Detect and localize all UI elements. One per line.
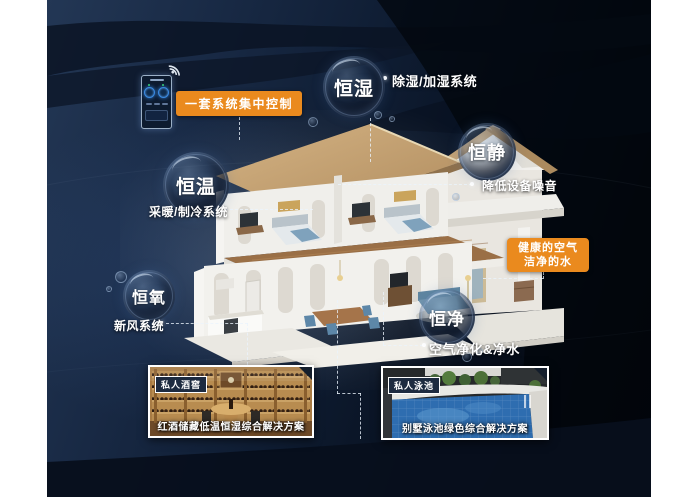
highlight-box: 健康的空气 洁净的水 (507, 238, 589, 272)
bubble-oxygen: 恒氧 (123, 270, 175, 322)
connector-cards-v1 (337, 300, 338, 394)
connector-oxygen (166, 323, 248, 324)
connector-humidity (370, 118, 371, 162)
mini-bubble (308, 117, 318, 127)
card-corner-fold (299, 367, 312, 380)
connector-highlight-h (483, 278, 543, 279)
dial-knob-icon (158, 87, 169, 98)
dial-knob-icon (144, 87, 155, 98)
pool-card-caption: 别墅泳池绿色综合解决方案 (383, 420, 547, 435)
mini-bubble (389, 116, 395, 122)
connector-temperature (225, 209, 313, 210)
control-label: 一套系统集中控制 (176, 91, 302, 116)
connector-clean-up (383, 292, 384, 345)
connector-cards-v2 (360, 393, 361, 439)
bubble-quiet: 恒静 (458, 123, 516, 181)
annotation-oxygen: 新风系统 (114, 317, 164, 334)
phone-dial-knobs (144, 87, 169, 98)
highlight-line2: 洁净的水 (511, 255, 585, 269)
wine-cellar-card: 私人酒窖 红酒储藏低温恒湿综合解决方案 (148, 365, 314, 438)
control-phone-icon (141, 75, 172, 129)
dot-quiet (470, 182, 474, 186)
pool-card-badge: 私人泳池 (388, 377, 440, 394)
bubble-temperature-label: 恒温 (176, 172, 216, 199)
mini-bubble (452, 193, 460, 201)
bubble-quiet-label: 恒静 (468, 139, 506, 165)
bubble-humidity: 恒湿 (323, 56, 385, 118)
annotation-clean: 空气净化&净水 (429, 339, 520, 358)
bubble-oxygen-label: 恒氧 (132, 284, 166, 308)
mini-bubble (374, 111, 382, 119)
bubble-clean: 恒净 (419, 289, 475, 345)
connector-clean (383, 345, 423, 346)
wine-card-caption: 红酒储藏低温恒湿综合解决方案 (150, 418, 312, 433)
mini-bubble (106, 286, 112, 292)
bubble-humidity-label: 恒湿 (334, 74, 374, 101)
annotation-quiet: 降低设备噪音 (482, 177, 557, 194)
mini-bubble (115, 271, 127, 283)
phone-readout-row (146, 103, 168, 105)
card-corner-fold (534, 368, 547, 381)
highlight-line1: 健康的空气 (511, 241, 585, 255)
bubble-clean-label: 恒净 (429, 305, 465, 330)
connector-quiet (338, 184, 472, 185)
infographic-page: 一套系统集中控制 恒湿 恒静 恒温 恒氧 恒净 除湿/加湿系统 降低设备噪音 采… (0, 0, 700, 497)
dot-clean (422, 343, 426, 347)
phone-subpanel (145, 110, 168, 121)
annotation-temperature: 采暖/制冷系统 (149, 203, 228, 220)
wine-card-badge: 私人酒窖 (155, 376, 207, 393)
phone-screen-title-bar (150, 79, 164, 81)
connector-oxygen-down (247, 323, 248, 365)
connector-cards-h (337, 393, 361, 394)
pool-card: 私人泳池 别墅泳池绿色综合解决方案 (381, 366, 549, 440)
annotation-humidity: 除湿/加湿系统 (392, 71, 477, 90)
connector-control (239, 112, 240, 140)
